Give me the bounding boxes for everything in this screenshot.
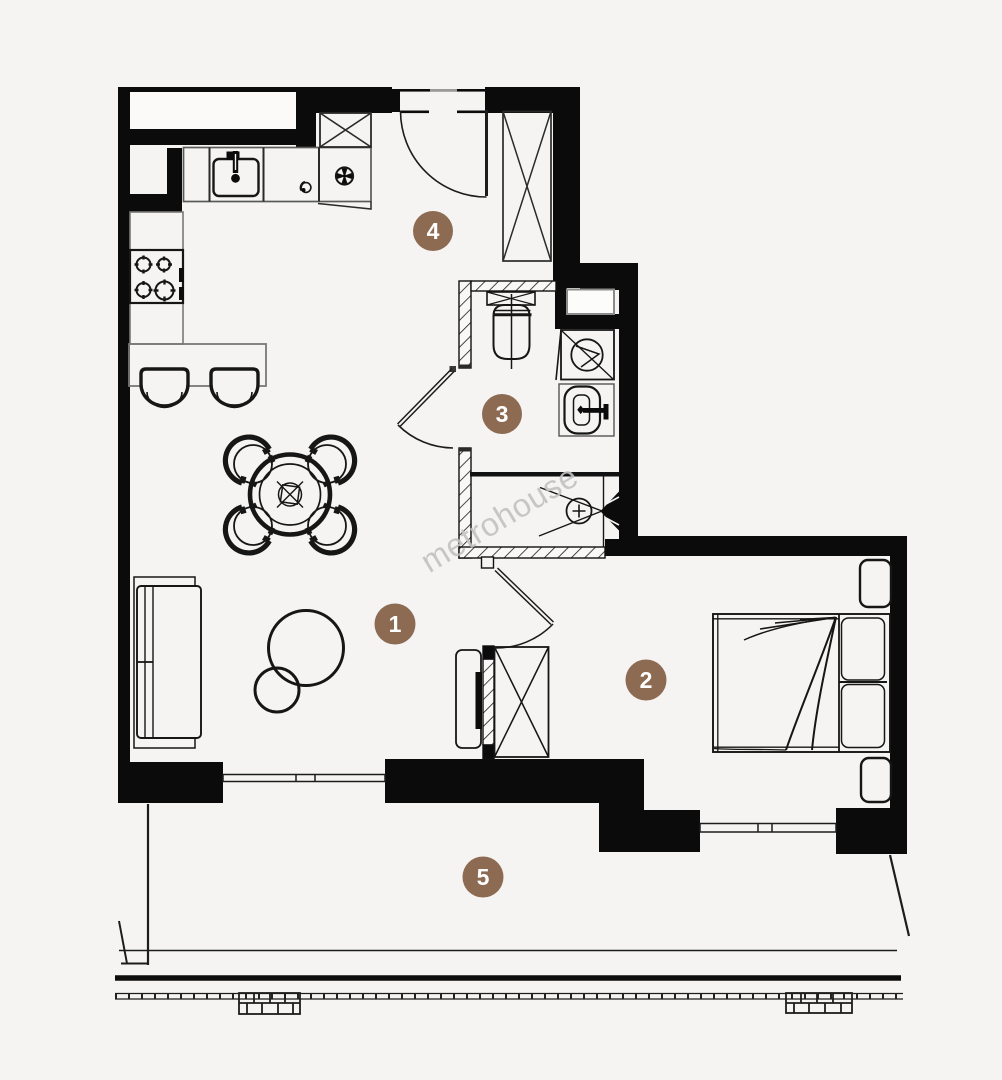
svg-text:3: 3 bbox=[496, 401, 509, 427]
svg-text:2: 2 bbox=[640, 667, 653, 693]
svg-text:5: 5 bbox=[477, 864, 490, 890]
svg-text:1: 1 bbox=[389, 611, 402, 637]
svg-text:4: 4 bbox=[427, 218, 440, 244]
